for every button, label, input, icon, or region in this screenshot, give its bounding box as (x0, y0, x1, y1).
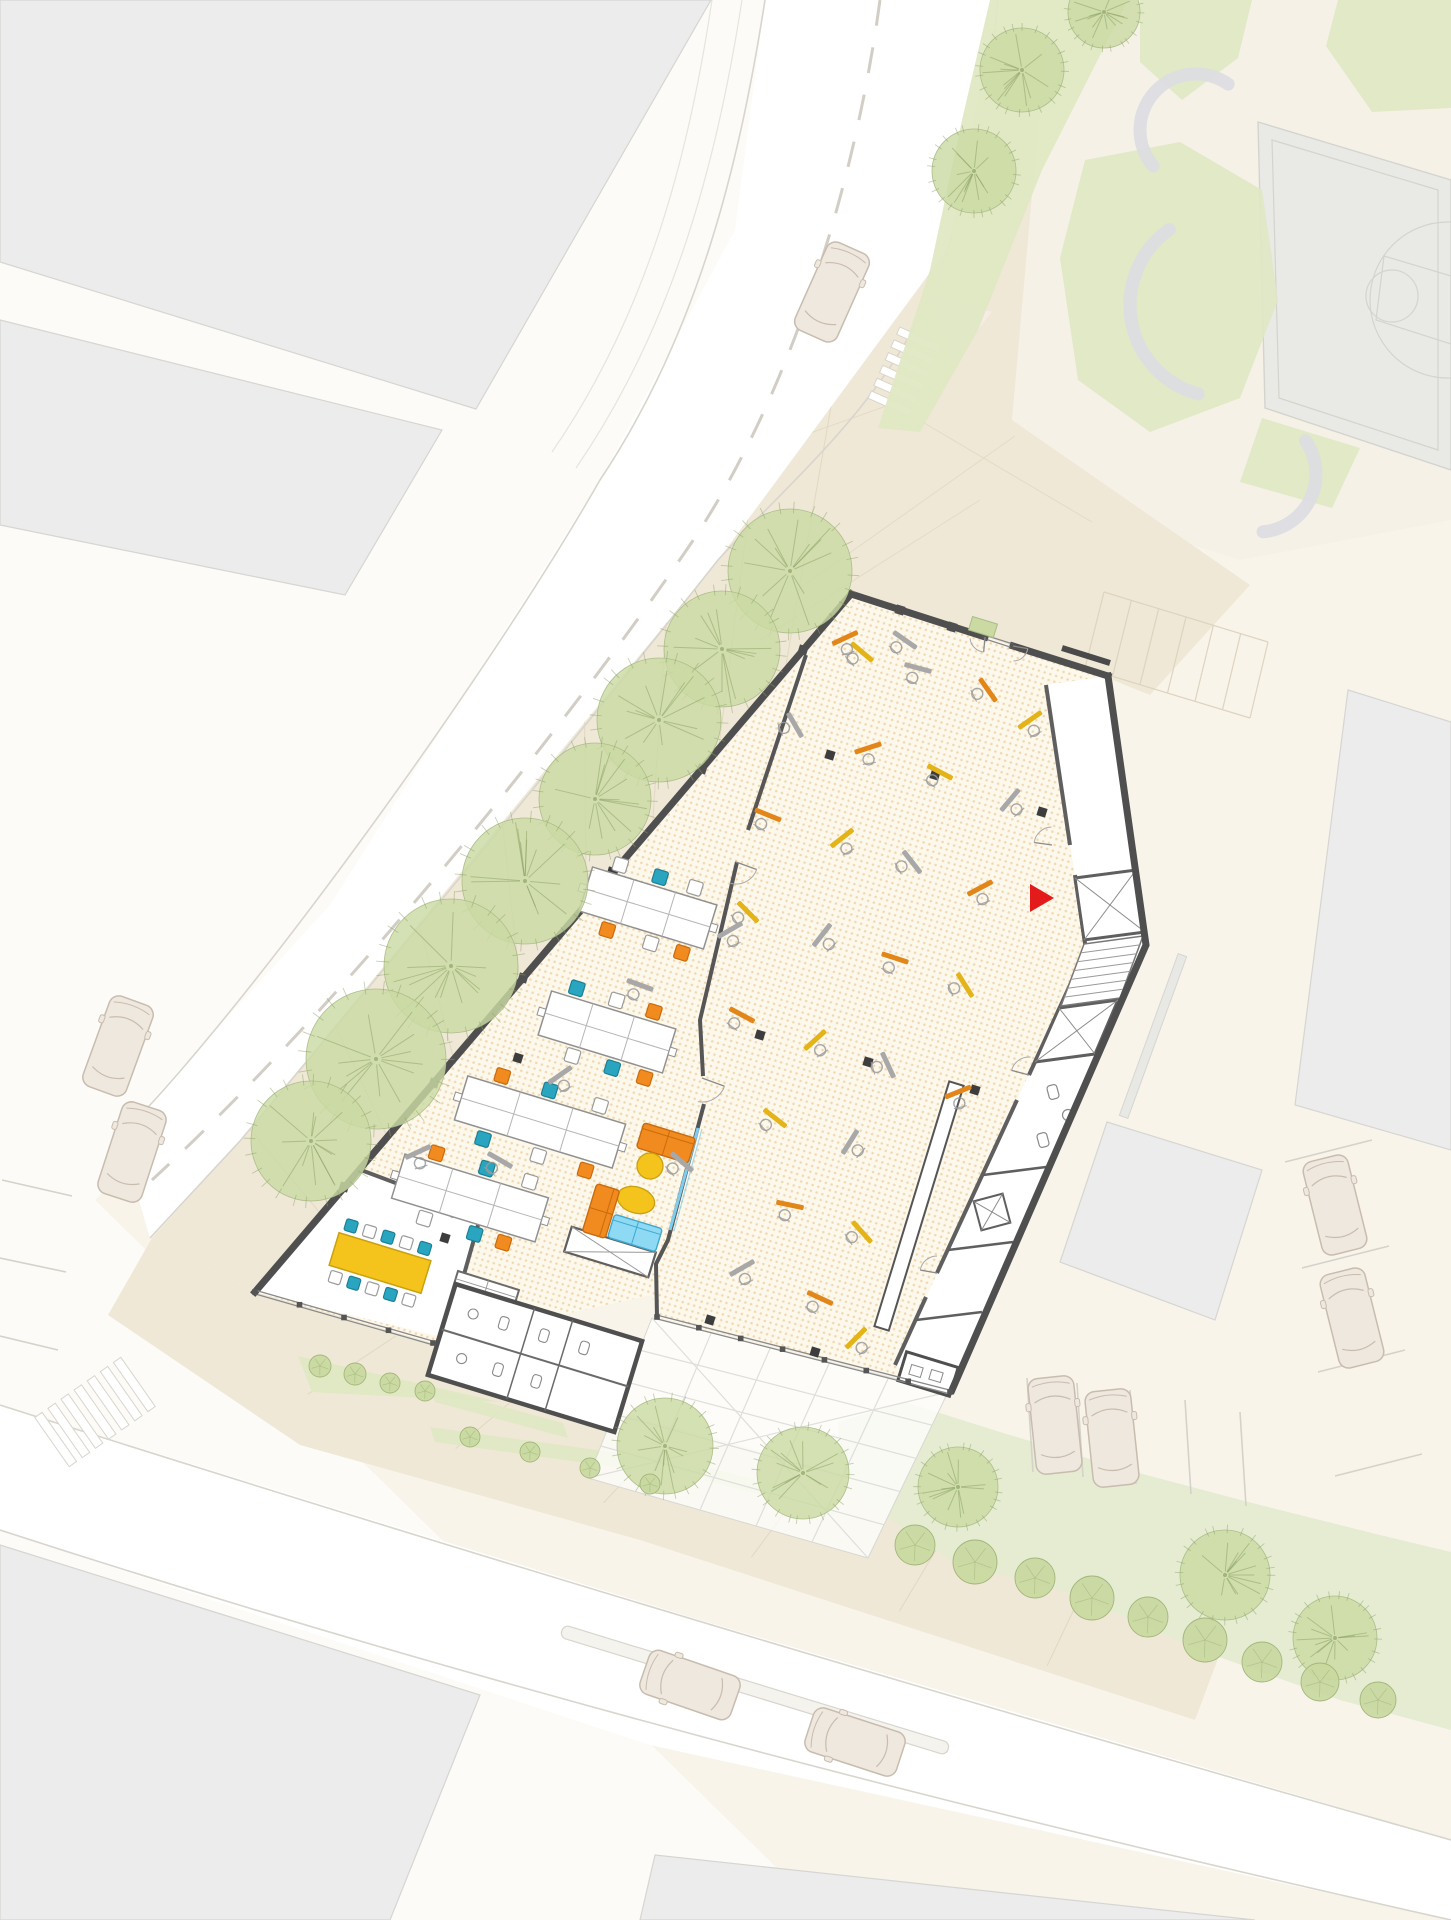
round-pouf (637, 1153, 663, 1179)
shrub (1242, 1642, 1282, 1682)
shrub (895, 1525, 935, 1565)
shrub (1070, 1576, 1114, 1620)
shrub (1301, 1663, 1339, 1701)
shrub (580, 1458, 600, 1478)
shrub (415, 1381, 435, 1401)
shrub (309, 1355, 331, 1377)
shrub (460, 1427, 480, 1447)
shrub (1128, 1597, 1168, 1637)
shrub (380, 1373, 400, 1393)
shrub (1015, 1558, 1055, 1598)
shrub (344, 1363, 366, 1385)
shrub (1360, 1682, 1396, 1718)
shrub (640, 1474, 660, 1494)
shrub (953, 1540, 997, 1584)
site-plan-page (0, 0, 1451, 1920)
shrub (1183, 1618, 1227, 1662)
small-shaft (974, 1194, 1011, 1231)
shrub (520, 1442, 540, 1462)
floor-plan-drawing (0, 0, 1451, 1920)
